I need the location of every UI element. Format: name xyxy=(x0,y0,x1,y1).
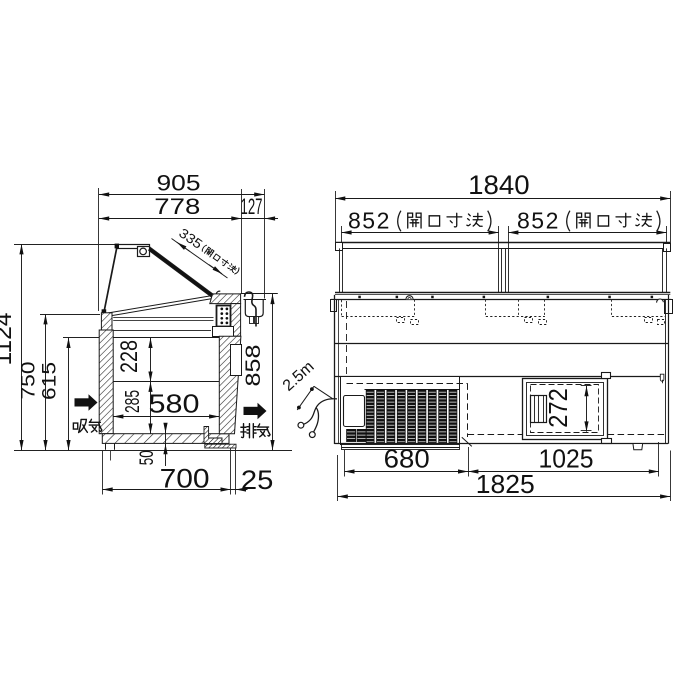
svg-text:1840: 1840 xyxy=(468,170,530,200)
svg-text:858: 858 xyxy=(242,345,265,387)
svg-text:25: 25 xyxy=(241,465,274,495)
svg-text:127: 127 xyxy=(241,194,263,219)
svg-text:852: 852 xyxy=(348,208,391,234)
svg-text:680: 680 xyxy=(384,444,430,474)
svg-text:285: 285 xyxy=(122,390,144,413)
svg-text:580: 580 xyxy=(149,388,200,418)
svg-text:1124: 1124 xyxy=(0,313,17,366)
svg-text:750: 750 xyxy=(19,362,40,400)
svg-text:1025: 1025 xyxy=(539,444,594,474)
svg-text:852: 852 xyxy=(517,208,560,234)
svg-text:615: 615 xyxy=(40,362,61,400)
svg-text:700: 700 xyxy=(160,464,210,494)
svg-text:1825: 1825 xyxy=(476,469,535,499)
svg-text:905: 905 xyxy=(157,171,201,196)
svg-text:50: 50 xyxy=(137,450,158,465)
svg-text:778: 778 xyxy=(154,194,200,219)
svg-text:228: 228 xyxy=(116,340,143,373)
svg-text:272: 272 xyxy=(543,388,573,428)
